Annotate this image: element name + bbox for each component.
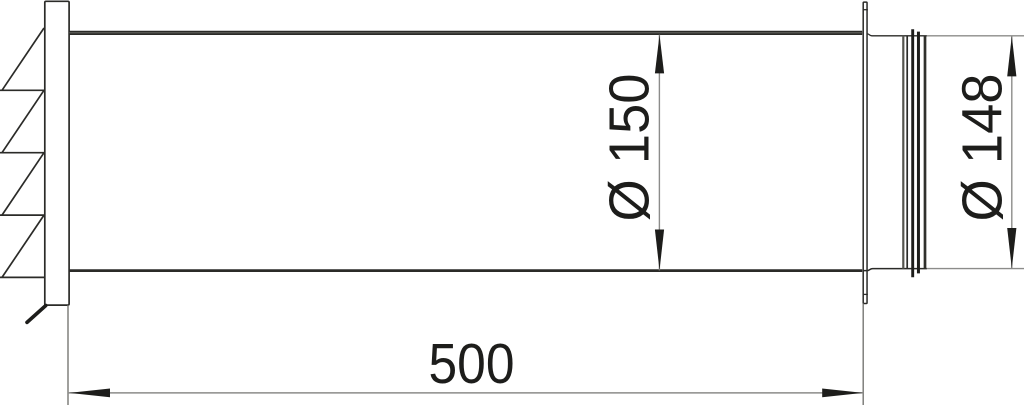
svg-text:500: 500 [429, 332, 515, 396]
svg-text:Ø 150: Ø 150 [598, 74, 662, 222]
svg-text:Ø 148: Ø 148 [951, 74, 1015, 222]
